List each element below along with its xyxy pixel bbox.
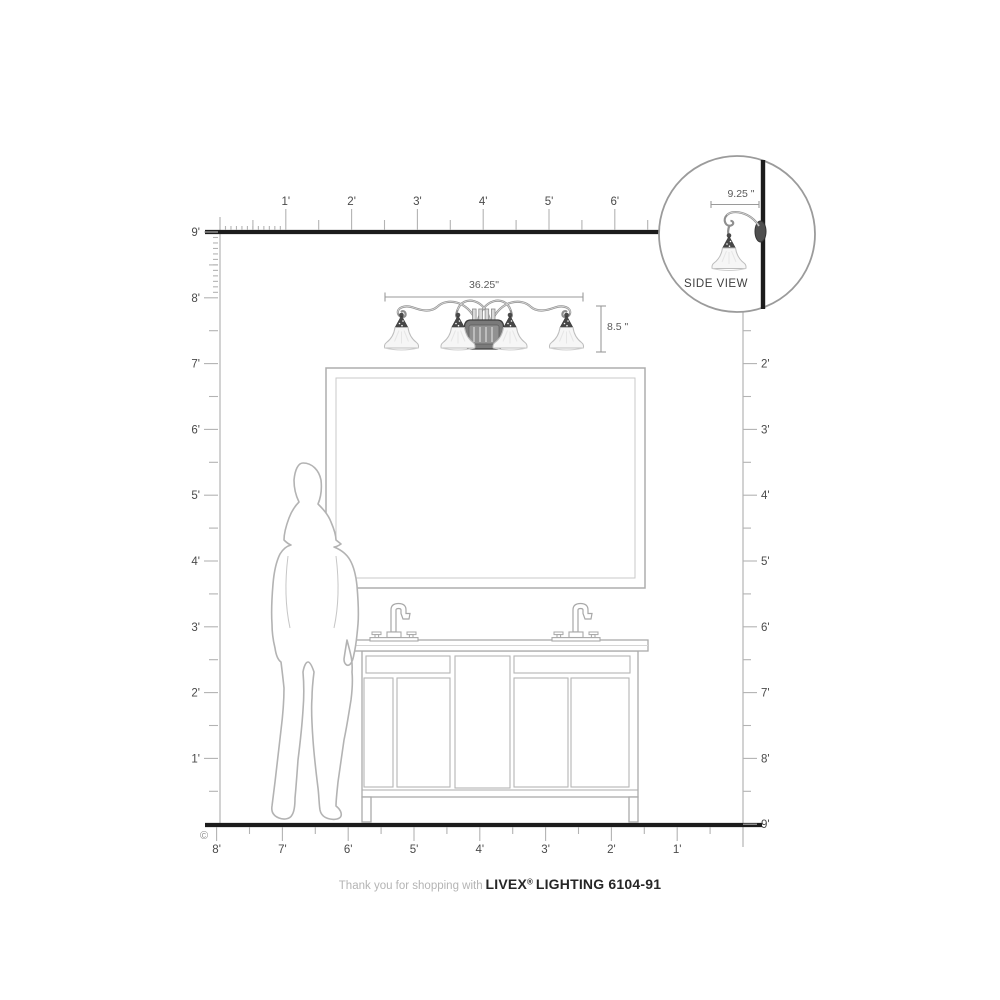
svg-text:6': 6' <box>761 622 770 634</box>
cabinet-door <box>397 678 450 787</box>
svg-text:2': 2' <box>191 688 200 700</box>
svg-text:2': 2' <box>761 359 770 371</box>
svg-text:6': 6' <box>191 424 200 436</box>
glass-shade <box>550 328 584 351</box>
svg-text:9': 9' <box>761 819 770 831</box>
svg-text:8': 8' <box>191 293 200 305</box>
center-panel <box>455 656 510 788</box>
drawer-front <box>366 656 450 673</box>
svg-text:2': 2' <box>607 844 616 856</box>
svg-text:3': 3' <box>413 196 422 208</box>
cabinet-door <box>571 678 629 787</box>
fixture-depth-dimension-label: 9.25 " <box>691 188 791 200</box>
footer-thanks-text: Thank you for shopping with <box>339 880 483 892</box>
cabinet-door <box>364 678 393 787</box>
svg-text:9': 9' <box>191 227 200 239</box>
faucet <box>552 604 600 642</box>
drawer-front <box>514 656 630 673</box>
svg-text:5': 5' <box>410 844 419 856</box>
svg-text:3': 3' <box>191 622 200 634</box>
svg-text:8': 8' <box>212 844 221 856</box>
side-view-caption: SIDE VIEW <box>666 278 766 290</box>
mirror-drawing <box>326 368 645 588</box>
fixture-arms <box>398 301 570 321</box>
svg-text:5': 5' <box>545 196 554 208</box>
svg-text:1': 1' <box>282 196 291 208</box>
cabinet-door <box>514 678 568 787</box>
svg-text:7': 7' <box>278 844 287 856</box>
registered-trademark-symbol: ® <box>527 878 533 887</box>
svg-text:4': 4' <box>479 196 488 208</box>
footer-caption: Thank you for shopping with LIVEX® LIGHT… <box>0 876 1000 892</box>
faucet <box>370 604 418 642</box>
svg-text:7': 7' <box>191 359 200 371</box>
svg-text:1': 1' <box>191 753 200 765</box>
fixture-height-dimension-label: 8.5 " <box>607 321 628 333</box>
footer-brand-name: LIVEX <box>486 876 527 892</box>
fixture-width-dimension-label: 36.25" <box>384 279 584 291</box>
scene-drawing: 1'2'3'4'5'6' 9'8'7'6'5'4'3'2'1' 2'3'4'5'… <box>0 0 1000 1000</box>
svg-text:4': 4' <box>191 556 200 568</box>
svg-text:4': 4' <box>476 844 485 856</box>
vanity-drawing <box>352 604 648 823</box>
copyright-symbol: © <box>200 830 208 842</box>
svg-text:5': 5' <box>191 490 200 502</box>
shade-holder <box>452 313 465 328</box>
svg-text:4': 4' <box>761 490 770 502</box>
glass-shade <box>385 328 419 351</box>
svg-text:3': 3' <box>761 424 770 436</box>
svg-text:1': 1' <box>673 844 682 856</box>
svg-text:3': 3' <box>541 844 550 856</box>
shade-holder <box>504 313 517 328</box>
svg-text:2': 2' <box>347 196 356 208</box>
svg-text:6': 6' <box>611 196 620 208</box>
top-ruler: 1'2'3'4'5'6' <box>225 196 647 230</box>
fixture-candle-tubes <box>473 309 496 321</box>
product-dimension-diagram: 1'2'3'4'5'6' 9'8'7'6'5'4'3'2'1' 2'3'4'5'… <box>0 0 1000 1000</box>
svg-text:6': 6' <box>344 844 353 856</box>
right-ruler: 2'3'4'5'6'7'8'9' <box>743 265 770 831</box>
svg-text:5': 5' <box>761 556 770 568</box>
cabinet-leg <box>629 797 638 822</box>
svg-text:8': 8' <box>761 753 770 765</box>
left-ruler: 9'8'7'6'5'4'3'2'1' <box>191 227 218 791</box>
cabinet-leg <box>362 797 371 822</box>
footer-model-number: LIGHTING 6104-91 <box>536 876 661 892</box>
vanity-light-fixture-drawing <box>385 301 584 350</box>
bottom-ruler: 8'7'6'5'4'3'2'1' <box>212 827 710 856</box>
svg-text:7': 7' <box>761 688 770 700</box>
